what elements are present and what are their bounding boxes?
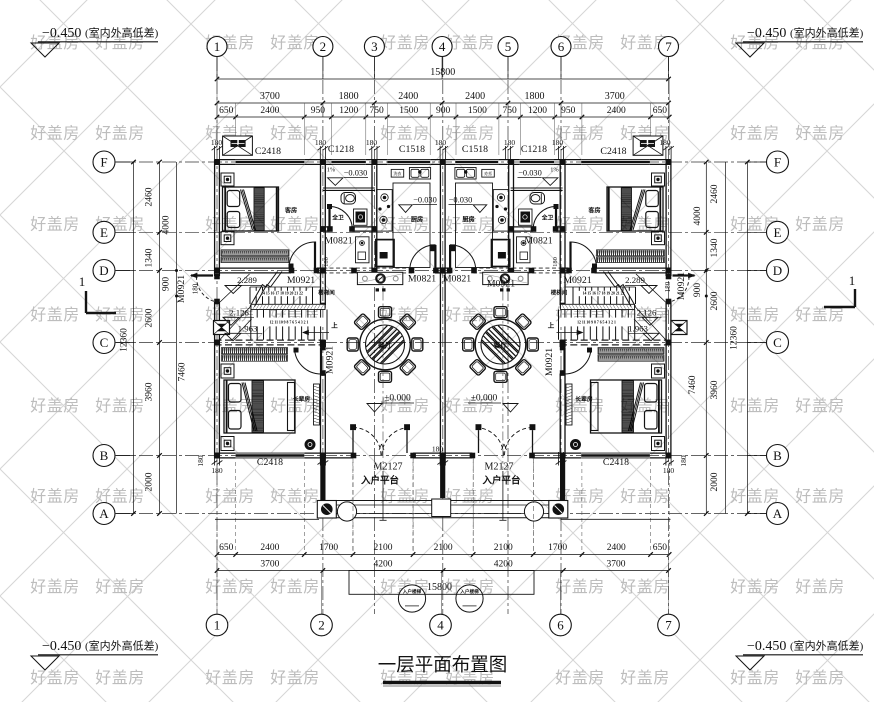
svg-text:一层平面布置图: 一层平面布置图 [378, 655, 508, 676]
svg-text:M0821: M0821 [324, 236, 352, 247]
svg-text:1200: 1200 [339, 106, 358, 116]
svg-text:4200: 4200 [494, 560, 513, 570]
svg-text:C2418: C2418 [255, 146, 281, 157]
svg-text:C1518: C1518 [399, 144, 425, 155]
svg-text:−0.030: −0.030 [518, 169, 542, 178]
svg-text:好盖房: 好盖房 [95, 397, 145, 415]
svg-text:950: 950 [311, 106, 326, 116]
svg-text:4000: 4000 [162, 215, 172, 234]
svg-text:2000: 2000 [710, 472, 720, 491]
svg-text:E: E [100, 225, 108, 240]
svg-text:14 15 16 17 18 19 20 21 22: 14 15 16 17 18 19 20 21 22 [583, 292, 625, 296]
svg-text:入户平台: 入户平台 [481, 475, 521, 487]
svg-text:楼梯间: 楼梯间 [318, 289, 335, 297]
svg-text:好盖房: 好盖房 [795, 215, 845, 233]
svg-text:2.289: 2.289 [625, 275, 645, 285]
svg-text:1340: 1340 [145, 248, 155, 267]
svg-text:好盖房: 好盖房 [30, 578, 80, 596]
svg-text:好盖房: 好盖房 [795, 669, 845, 687]
svg-text:6: 6 [558, 39, 565, 54]
svg-text:好盖房: 好盖房 [95, 578, 145, 596]
svg-text:1700: 1700 [319, 543, 338, 553]
svg-text:4000: 4000 [693, 206, 703, 225]
svg-text:M0921: M0921 [676, 272, 687, 300]
svg-text:F: F [774, 155, 781, 170]
svg-text:(室内外高低差): (室内外高低差) [790, 26, 864, 40]
svg-text:M0921: M0921 [325, 346, 336, 374]
svg-text:1.963: 1.963 [238, 324, 258, 334]
svg-text:C1218: C1218 [328, 144, 354, 155]
svg-text:1340: 1340 [710, 238, 720, 257]
svg-text:14 15 16 17 18 19 20 21 22: 14 15 16 17 18 19 20 21 22 [261, 292, 303, 296]
svg-text:180: 180 [659, 138, 671, 147]
svg-text:好盖房: 好盖房 [620, 669, 670, 687]
svg-text:2: 2 [318, 618, 325, 633]
svg-text:C: C [773, 335, 782, 350]
svg-text:−0.030: −0.030 [449, 196, 473, 205]
svg-text:全卫: 全卫 [331, 214, 344, 222]
svg-text:1200: 1200 [528, 106, 547, 116]
svg-text:3700: 3700 [607, 560, 626, 570]
svg-text:2400: 2400 [465, 91, 485, 102]
svg-text:3700: 3700 [260, 560, 279, 570]
svg-text:180: 180 [663, 466, 675, 475]
svg-text:好盖房: 好盖房 [30, 306, 80, 324]
svg-text:好盖房: 好盖房 [30, 397, 80, 415]
svg-text:3700: 3700 [605, 91, 625, 102]
svg-text:好盖房: 好盖房 [95, 669, 145, 687]
svg-text:180: 180 [504, 138, 516, 147]
svg-text:(室内外高低差): (室内外高低差) [790, 639, 864, 653]
svg-text:180: 180 [679, 455, 688, 467]
svg-text:180: 180 [196, 455, 205, 467]
svg-text:7460: 7460 [688, 375, 698, 394]
svg-text:12 11 10 9 8 7 6 5 4 3 2 1: 12 11 10 9 8 7 6 5 4 3 2 1 [577, 320, 616, 324]
svg-text:好盖房: 好盖房 [795, 578, 845, 596]
svg-text:2100: 2100 [434, 543, 453, 553]
svg-text:长辈房: 长辈房 [293, 395, 311, 403]
svg-text:入户楼梯: 入户楼梯 [403, 588, 422, 595]
svg-text:4: 4 [437, 618, 444, 633]
svg-text:好盖房: 好盖房 [730, 669, 780, 687]
svg-text:好盖房: 好盖房 [95, 125, 145, 143]
svg-text:180: 180 [211, 138, 223, 147]
svg-text:7: 7 [665, 39, 672, 54]
svg-text:180: 180 [211, 466, 223, 475]
svg-text:洗衣: 洗衣 [393, 170, 401, 176]
svg-text:好盖房: 好盖房 [270, 125, 320, 143]
svg-text:15800: 15800 [430, 67, 455, 78]
svg-text:C1218: C1218 [521, 144, 547, 155]
svg-text:2100: 2100 [374, 543, 393, 553]
svg-text:−0.450: −0.450 [42, 26, 81, 41]
svg-text:好盖房: 好盖房 [730, 306, 780, 324]
svg-text:C2418: C2418 [257, 457, 283, 468]
svg-text:−0.030: −0.030 [413, 196, 437, 205]
svg-text:2600: 2600 [145, 308, 155, 327]
svg-text:D: D [99, 263, 108, 278]
svg-text:−0.450: −0.450 [747, 26, 786, 41]
svg-text:入户楼梯: 入户楼梯 [460, 588, 479, 595]
svg-text:3960: 3960 [710, 380, 720, 399]
svg-text:2460: 2460 [145, 187, 155, 206]
svg-text:好盖房: 好盖房 [730, 397, 780, 415]
svg-text:950: 950 [561, 106, 576, 116]
svg-text:7: 7 [665, 618, 672, 633]
svg-text:好盖房: 好盖房 [555, 669, 605, 687]
svg-text:M0821: M0821 [408, 274, 436, 285]
svg-text:厨房: 厨房 [411, 216, 423, 224]
svg-text:2000: 2000 [145, 472, 155, 491]
svg-text:900: 900 [693, 283, 703, 298]
svg-text:好盖房: 好盖房 [620, 488, 670, 506]
svg-text:楼梯间: 楼梯间 [551, 289, 568, 297]
svg-text:2400: 2400 [607, 543, 626, 553]
svg-text:5: 5 [505, 39, 512, 54]
svg-text:1500: 1500 [468, 106, 487, 116]
svg-text:2400: 2400 [260, 543, 279, 553]
svg-text:好盖房: 好盖房 [795, 488, 845, 506]
svg-text:好盖房: 好盖房 [270, 34, 320, 52]
svg-text:7460: 7460 [178, 362, 188, 381]
svg-text:2400: 2400 [398, 91, 418, 102]
svg-text:2.126: 2.126 [637, 308, 657, 318]
svg-text:好盖房: 好盖房 [620, 578, 670, 596]
svg-text:E: E [774, 225, 782, 240]
svg-text:M2127: M2127 [485, 462, 514, 473]
svg-text:好盖房: 好盖房 [730, 488, 780, 506]
svg-text:好盖房: 好盖房 [270, 669, 320, 687]
svg-text:好盖房: 好盖房 [445, 34, 495, 52]
svg-text:900: 900 [436, 106, 451, 116]
svg-text:900: 900 [162, 277, 172, 292]
svg-text:2100: 2100 [494, 543, 513, 553]
svg-text:750: 750 [502, 106, 517, 116]
svg-text:B: B [773, 448, 782, 463]
svg-text:好盖房: 好盖房 [445, 125, 495, 143]
svg-text:12360: 12360 [120, 328, 130, 352]
svg-text:好盖房: 好盖房 [445, 488, 495, 506]
svg-text:F: F [100, 155, 107, 170]
svg-text:M0821: M0821 [443, 274, 471, 285]
svg-text:厨房: 厨房 [462, 216, 474, 224]
svg-text:好盖房: 好盖房 [30, 125, 80, 143]
svg-text:12360: 12360 [730, 326, 740, 350]
svg-text:180: 180 [664, 281, 672, 292]
svg-text:4200: 4200 [374, 560, 393, 570]
svg-text:好盖房: 好盖房 [795, 125, 845, 143]
svg-text:−0.450: −0.450 [42, 639, 81, 654]
svg-text:好盖房: 好盖房 [205, 488, 255, 506]
svg-text:客房: 客房 [587, 207, 600, 215]
svg-text:3960: 3960 [145, 382, 155, 401]
svg-text:1: 1 [214, 39, 221, 54]
svg-text:2400: 2400 [260, 106, 279, 116]
svg-text:好盖房: 好盖房 [795, 306, 845, 324]
svg-text:180: 180 [552, 257, 559, 267]
svg-text:1.963: 1.963 [628, 324, 648, 334]
svg-text:1: 1 [79, 274, 86, 289]
svg-text:1%: 1% [550, 167, 559, 174]
svg-text:180: 180 [366, 138, 378, 147]
svg-text:M0921: M0921 [287, 275, 315, 286]
svg-text:好盖房: 好盖房 [380, 125, 430, 143]
svg-text:1%: 1% [327, 167, 336, 174]
svg-text:2.289: 2.289 [237, 275, 257, 285]
svg-text:好盖房: 好盖房 [30, 215, 80, 233]
svg-text:好盖房: 好盖房 [270, 578, 320, 596]
svg-text:180: 180 [323, 257, 330, 267]
svg-text:2.126: 2.126 [229, 308, 249, 318]
svg-text:3: 3 [371, 39, 378, 54]
svg-text:好盖房: 好盖房 [205, 578, 255, 596]
svg-text:好盖房: 好盖房 [30, 488, 80, 506]
svg-text:3700: 3700 [260, 91, 280, 102]
svg-text:1800: 1800 [525, 91, 545, 102]
svg-text:好盖房: 好盖房 [30, 669, 80, 687]
svg-text:4: 4 [439, 39, 446, 54]
svg-text:1800: 1800 [339, 91, 359, 102]
svg-text:−0.450: −0.450 [747, 639, 786, 654]
svg-text:180: 180 [435, 138, 447, 147]
svg-text:2460: 2460 [710, 184, 720, 203]
svg-text:M0921: M0921 [563, 275, 591, 286]
svg-text:M0921: M0921 [176, 275, 187, 303]
svg-text:±0.000: ±0.000 [471, 394, 498, 404]
svg-text:180: 180 [552, 138, 564, 147]
svg-text:180: 180 [432, 445, 444, 454]
svg-text:好盖房: 好盖房 [730, 125, 780, 143]
svg-text:餐厅: 餐厅 [377, 341, 392, 350]
svg-text:A: A [773, 506, 783, 521]
svg-text:M2127: M2127 [374, 462, 403, 473]
svg-text:1700: 1700 [548, 543, 567, 553]
svg-text:180: 180 [315, 138, 327, 147]
svg-text:M0921: M0921 [487, 279, 515, 290]
svg-text:C2418: C2418 [600, 146, 626, 157]
svg-text:2600: 2600 [710, 291, 720, 310]
svg-text:C: C [100, 335, 109, 350]
svg-text:好盖房: 好盖房 [270, 488, 320, 506]
svg-text:好盖房: 好盖房 [730, 578, 780, 596]
svg-text:650: 650 [653, 106, 668, 116]
svg-text:M0921: M0921 [544, 348, 555, 376]
svg-text:180: 180 [192, 283, 200, 294]
svg-text:好盖房: 好盖房 [795, 397, 845, 415]
svg-text:上: 上 [548, 321, 555, 330]
svg-text:(室内外高低差): (室内外高低差) [85, 26, 159, 40]
svg-text:B: B [100, 448, 109, 463]
svg-text:−0.030: −0.030 [344, 169, 368, 178]
svg-text:C2418: C2418 [603, 457, 629, 468]
svg-text:长辈房: 长辈房 [575, 395, 593, 403]
svg-text:M0821: M0821 [524, 236, 552, 247]
svg-text:好盖房: 好盖房 [380, 488, 430, 506]
svg-text:全卫: 全卫 [541, 214, 554, 222]
svg-text:650: 650 [219, 106, 234, 116]
svg-text:客房: 客房 [284, 207, 297, 215]
svg-text:好盖房: 好盖房 [95, 306, 145, 324]
svg-text:650: 650 [219, 543, 234, 553]
svg-text:±0.000: ±0.000 [384, 394, 411, 404]
svg-text:6: 6 [557, 618, 564, 633]
svg-text:15800: 15800 [427, 582, 452, 593]
svg-text:D: D [773, 263, 782, 278]
svg-text:入户平台: 入户平台 [360, 475, 400, 487]
svg-text:(室内外高低差): (室内外高低差) [85, 639, 159, 653]
svg-text:650: 650 [653, 543, 668, 553]
svg-text:1500: 1500 [399, 106, 418, 116]
svg-text:C1518: C1518 [462, 144, 488, 155]
svg-text:750: 750 [369, 106, 384, 116]
svg-text:A: A [99, 506, 109, 521]
svg-text:好盖房: 好盖房 [380, 34, 430, 52]
svg-text:餐厅: 餐厅 [493, 341, 508, 350]
svg-text:好盖房: 好盖房 [555, 578, 605, 596]
svg-text:1: 1 [849, 273, 856, 288]
svg-text:好盖房: 好盖房 [205, 669, 255, 687]
svg-text:2400: 2400 [607, 106, 626, 116]
svg-text:1: 1 [214, 618, 221, 633]
svg-text:12 11 10 9 8 7 6 5 4 3 2 1: 12 11 10 9 8 7 6 5 4 3 2 1 [270, 320, 309, 324]
svg-text:2: 2 [320, 39, 327, 54]
svg-text:上: 上 [331, 321, 338, 330]
